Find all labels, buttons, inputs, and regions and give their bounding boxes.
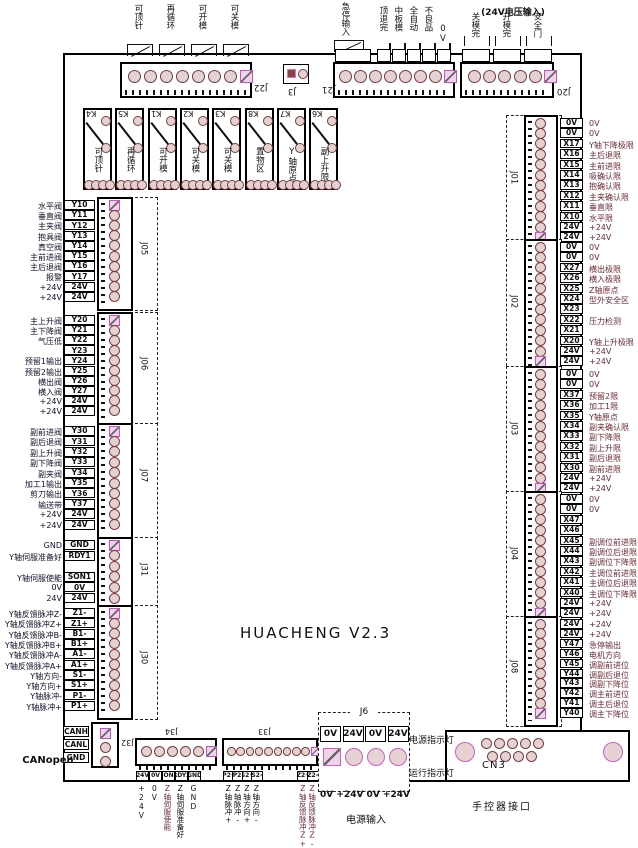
signal-label: 水平限 [589,213,613,224]
pin-label: 24V [560,473,583,483]
pin-label: Y33 [64,457,95,467]
j33-pad [292,747,301,756]
signal-label: 0V [589,495,600,504]
pin-label: Y37 [64,499,95,509]
signal-label: 24V [0,594,62,603]
signal-label: 主调位后退限 [589,578,637,589]
pin-label: 24V [64,509,95,519]
j33-signal-label: Z轴方向- [252,784,260,831]
pin-label: 24V [64,593,95,603]
coil-signal-label: 再循环 [165,4,174,46]
signal-label: 预留2限 [589,391,618,402]
pin-hole [535,421,546,432]
j34-pin-label: GND [188,771,201,781]
pin-hole [109,457,120,468]
pin-label: 24V [64,292,95,302]
bracket-symbol [495,36,521,46]
j32-pad [100,728,111,739]
j22-pin [176,70,189,83]
pin-hole [535,170,546,181]
signal-label: Y轴伺服准备好 [0,552,62,563]
pin-label: Y21 [64,325,95,335]
solder-ticks [101,203,105,305]
pin-label: Y31 [64,436,95,446]
j34-pad [154,746,165,757]
solder-ticks [101,543,105,607]
pin-label: X44 [560,546,583,556]
pin-label: X40 [560,588,583,598]
pin-label: X31 [560,452,583,462]
pin-label: X14 [560,170,583,180]
pin-label: 24V [560,356,583,366]
pin-hole [535,504,546,515]
pin-label: Y14 [64,241,95,251]
j34-signal-label: Z轴伺服使能 [163,784,171,845]
pin-hole [535,473,546,484]
solder-ticks [528,372,532,497]
j21-terminal-box [377,49,391,62]
pin-hole [535,242,546,253]
pin-hole [109,680,120,691]
signal-label: 抱确认限 [589,181,621,192]
relay-id-label: K6 [312,109,322,118]
signal-label: GND [0,541,62,550]
pin-label: X35 [560,411,583,421]
cn3-pin [533,738,544,749]
signal-label: Z轴原点 [589,285,618,296]
pin-label: P1- [64,690,95,700]
cn3-pin [526,751,537,762]
pin-hole [109,608,120,619]
relay-id-label: K1 [151,109,161,118]
pin-label: Y17 [64,271,95,281]
j20-terminal-box [493,49,521,62]
connector-label-J31: J31 [139,563,148,576]
pin-label: 24V [560,619,583,629]
coil-signal-label: 可开模 [197,4,206,46]
coil-signal-label: 可顶针 [133,4,142,46]
pin-label: X13 [560,180,583,190]
relay-id-label: K3 [215,109,225,118]
pin-label: X42 [560,567,583,577]
signal-label: Y轴下降极限 [589,140,634,151]
pin-label: Y25 [64,366,95,376]
j21-pin [429,70,442,83]
pin-label: Y34 [64,468,95,478]
pin-label: GND [64,540,95,550]
cn3-pin [507,738,518,749]
signal-label: Y轴原点 [589,412,618,423]
relay-pin [327,116,337,126]
pin-hole [109,561,120,572]
pin-hole [109,593,120,604]
connector-label-J02: J02 [509,295,518,308]
j33-pad [264,747,273,756]
j6-power-pad [323,748,341,766]
signal-label: 吸确认限 [589,171,621,182]
relay-pin [137,180,147,190]
connector-j20 [460,62,554,98]
pin-hole [535,494,546,505]
pin-label: X33 [560,431,583,441]
connector-label-j20: J20 [557,86,570,96]
pin-label: B1+ [64,639,95,649]
j34-pad [180,746,191,757]
pin-label: Y46 [560,649,583,659]
pin-label: X36 [560,400,583,410]
pin-label: Y26 [64,376,95,386]
pin-label: 24V [560,222,583,232]
pin-label: X32 [560,442,583,452]
connector-label-j22: J22 [254,82,267,92]
pin-label: X30 [560,463,583,473]
signal-label: +24V [589,630,611,639]
signal-label: +24V [0,521,62,530]
j33-pad [255,747,264,756]
j32-pin-label: CANL [63,739,89,750]
j34-signal-label: Z轴伺服准备好 [176,784,184,848]
relay-pin [267,180,277,190]
j33-pad [301,747,310,756]
j6-power-pad [345,748,363,766]
pin-label: Y47 [560,639,583,649]
signal-label: 副前进阀 [0,427,62,438]
pin-hole [535,546,546,557]
j22-pin [128,70,141,83]
connector-label-J33: J33 [258,727,271,736]
pin-label: Y44 [560,669,583,679]
j21-pin [399,70,412,83]
pin-hole [535,452,546,463]
pin-label: X26 [560,273,583,283]
connector-label-J04: J04 [509,547,518,560]
pin-label: Y11 [64,210,95,220]
relay-pin [202,180,212,190]
pin-hole [109,426,120,437]
signal-label: +24V [0,397,62,406]
signal-label: Y轴伺服使能 [0,573,62,584]
j33-pin-label: S2- [251,771,263,781]
relay-K7: K7Y轴原点 [277,108,306,190]
j6-pin-label: 0V [365,726,386,742]
signal-label: 型外安全区 [589,295,629,306]
pin-hole [535,598,546,609]
pin-hole [535,525,546,536]
handheld-controller-caption: 手控器接口 [472,798,532,813]
j20-pin [529,70,542,83]
pin-label: A1+ [64,660,95,670]
pin-label: 0V [64,582,95,592]
pin-label: Y22 [64,335,95,345]
signal-label: 调主下降位 [589,709,629,720]
signal-label: +24V [589,357,611,366]
pin-label: 24V [560,232,583,242]
pin-label: P1+ [64,701,95,711]
connector-J33 [222,738,318,766]
pin-label: 0V [560,504,583,514]
j33-pad [283,747,292,756]
j22-pin [224,70,237,83]
pin-hole [109,325,120,336]
signal-label: +24V [0,407,62,416]
pin-hole [535,379,546,390]
connector-J32 [91,722,119,768]
pin-label: Z1- [64,608,95,618]
pin-label: X34 [560,421,583,431]
pin-hole [535,128,546,139]
solder-ticks [528,622,532,721]
cn3-pin [481,738,492,749]
pin-hole [535,346,546,357]
relay-pin [263,116,273,126]
j22-pin [144,70,157,83]
j3-pad-square [287,69,296,78]
pin-label: 0V [560,242,583,252]
pin-label: X43 [560,556,583,566]
solder-ticks [101,611,105,714]
connector-label-j3: J3 [288,86,296,96]
voltage-input-title: (24V电压输入) [448,5,578,18]
pin-label: X37 [560,390,583,400]
pin-label: X16 [560,149,583,159]
pin-label: X47 [560,515,583,525]
connector-j22 [120,62,252,98]
pin-label: X20 [560,336,583,346]
pin-hole [535,708,546,719]
relay-id-label: K4 [86,109,96,118]
relay-pin [101,116,111,126]
pin-label: X46 [560,525,583,535]
signal-label: 副调位后退限 [589,547,637,558]
pin-label: 24V [560,483,583,493]
signal-label: +24V [589,347,611,356]
signal-label: +24V [589,620,611,629]
relay-pin [299,180,309,190]
connector-j3 [283,64,309,84]
j32-pin-label: CANH [63,726,89,737]
connector-label-J07: J07 [139,469,148,482]
relay-K6: K6副上升限 [309,108,338,190]
j21-terminal-box [407,49,421,62]
pin-label: Y12 [64,220,95,230]
pin-label: 0V [560,128,583,138]
connector-label-J32: J32 [121,738,134,747]
j22-pin [192,70,205,83]
pin-label: 24V [560,346,583,356]
signal-label: 0V [589,380,600,389]
bracket-symbol [464,36,490,46]
j6-power-pad [389,748,407,766]
connector-j21 [333,62,455,98]
pin-label: X11 [560,201,583,211]
relay-K2: K2可关模 [180,108,209,190]
board-title: HUACHENG V2.3 [240,624,391,642]
j33-pad [246,747,255,756]
connector-label-J08: J08 [509,660,518,673]
solder-ticks [338,90,450,95]
signal-label: +24V [0,293,62,302]
pin-label: Y45 [560,659,583,669]
power-input-caption: 电源输入 [328,811,404,826]
pin-label: X23 [560,304,583,314]
relay-pin [170,180,180,190]
connector-cn3 [445,730,630,782]
signal-label: 压力检测 [589,316,621,327]
j20-pin [498,70,511,83]
signal-label: 剪刀输出 [0,489,62,500]
pin-hole [535,118,546,129]
j33-signal-label: Z轴反馈脉冲Z+ [298,784,306,848]
signal-label: 垂直限 [589,202,613,213]
relay-id-label: K5 [118,109,128,118]
signal-label: 0V [589,370,600,379]
pin-label: Y27 [64,386,95,396]
relay-pin [234,180,244,190]
pin-hole [535,369,546,380]
solder-ticks [125,90,247,95]
pin-label: 24V [560,608,583,618]
pin-label: RDY1 [64,551,95,561]
signal-label: +24V [0,510,62,519]
pin-label: X41 [560,577,583,587]
pin-label: X15 [560,160,583,170]
relay-id-label: K8 [248,109,258,118]
j34-pad [206,746,217,757]
pcb-wiring-diagram: 可顶针再循环可开模可关模J22J3急停输入顶退完中板模全自动不良品0VJ21关模… [0,0,638,848]
pin-hole [535,556,546,567]
solder-ticks [101,429,105,533]
pin-hole [109,436,120,447]
connector-label-J06: J06 [139,357,148,370]
pin-hole [535,294,546,305]
j34-pad [167,746,178,757]
pin-label: 0V [560,379,583,389]
pin-label: 0V [560,118,583,128]
pin-label: X12 [560,191,583,201]
j21-signal-label: 顶退完 [378,6,387,46]
relay-id-label: K7 [280,109,290,118]
j22-pin [208,70,221,83]
j22-pin [160,70,173,83]
pin-label: Y16 [64,261,95,271]
j20-terminal-box [462,49,490,62]
pin-label: 24V [64,406,95,416]
pin-label: Y35 [64,478,95,488]
signal-label: 副下降限 [589,432,621,443]
solder-ticks [101,318,105,419]
pin-hole [535,325,546,336]
pin-hole [109,200,120,211]
j21-terminal-box [392,49,406,62]
signal-label: 主后退限 [589,150,621,161]
canopen-label: CANopen [8,755,88,766]
signal-label: 0V [589,505,600,514]
signal-label: 副调位下降限 [589,557,637,568]
coil-signal-label: 可关模 [229,4,238,46]
j21-terminal-box [422,49,436,62]
pin-label: Y42 [560,688,583,698]
j21-pin [339,70,352,83]
j33-pad [274,747,283,756]
j34-pin-label: SON2 [162,771,175,781]
pin-hole [109,251,120,262]
signal-label: 0V [589,253,600,262]
pin-hole [535,577,546,588]
solder-ticks [139,766,213,770]
cn3-mount-hole [455,742,475,762]
connector-label-J30: J30 [139,651,148,664]
signal-label: 副后退阀 [0,437,62,448]
connector-J34 [135,738,217,766]
pin-label: X25 [560,284,583,294]
j33-pin-label: Z2- [307,771,319,781]
relay-K4: K4可顶针 [83,108,112,190]
pin-label: 24V [560,598,583,608]
signal-label: 副夹确认限 [589,422,629,433]
cn3-pin [520,738,531,749]
signal-label: +24V [589,609,611,618]
bracket-symbol [526,36,552,46]
pin-label: X21 [560,325,583,335]
pin-label: Y23 [64,345,95,355]
pin-label: X27 [560,263,583,273]
pin-label: Y43 [560,678,583,688]
cn3-pin [513,751,524,762]
pin-label: 24V [64,282,95,292]
j34-signal-label: +24V [137,784,145,826]
pin-label: Y40 [560,708,583,718]
solder-ticks [528,121,532,246]
pin-label: Y30 [64,426,95,436]
connector-label-j21: J21 [322,84,335,94]
pin-label: 24V [64,520,95,530]
signal-label: 气压低 [0,336,62,347]
pin-hole [109,488,120,499]
j33-signal-label: Z轴方向+ [243,784,251,831]
solder-ticks [528,245,532,370]
pin-hole [535,180,546,191]
j6-pin-label: 24V [388,726,409,742]
signal-label: Y轴上升极限 [589,337,634,348]
cn3-pin [494,738,505,749]
j6-pin-label: 24V [343,726,364,742]
signal-label: 副后退限 [589,453,621,464]
j21-pin [369,70,382,83]
pin-hole [109,478,120,489]
run-indicator-label: 运行指示灯 [409,766,454,779]
pin-hole [535,252,546,263]
relay-pin [105,180,115,190]
pin-label: X17 [560,139,583,149]
pin-label: Y36 [64,488,95,498]
relay-pin [263,143,273,153]
pin-label: A1- [64,649,95,659]
j34-pin-label: RDY2 [175,771,188,781]
signal-label: 0V [589,243,600,252]
pin-label: S1+ [64,680,95,690]
j33-pad [227,747,236,756]
signal-label: 输送带 [0,500,62,511]
j21-signal-label: 全自动 [408,6,417,46]
pin-hole [535,304,546,315]
signal-label: 0V [589,129,600,138]
signal-label: 主夹确认限 [589,192,629,203]
signal-label: 主调位下降限 [589,589,637,600]
j34-pin-label: 24V [136,771,149,781]
j21-signal-label: 不良品 [423,6,432,46]
relay-K3: K3可关模 [212,108,241,190]
diagram-layer: 可顶针再循环可开模可关模J22J3急停输入顶退完中板模全自动不良品0VJ21关模… [0,0,638,848]
